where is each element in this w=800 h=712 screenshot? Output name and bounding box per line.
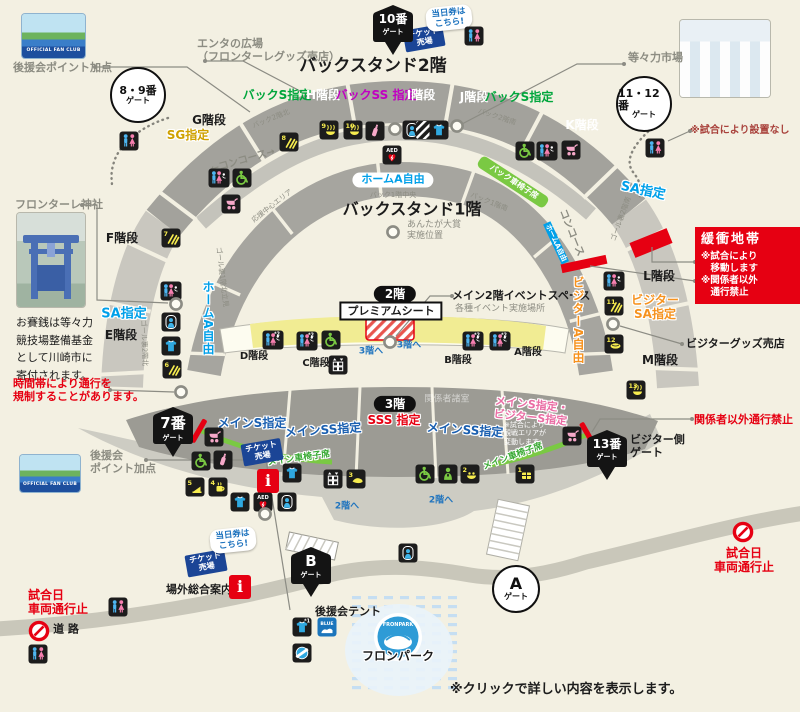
svg-text:i: i <box>265 471 271 490</box>
noentry-icon[interactable] <box>732 521 754 543</box>
info-icon[interactable]: i <box>257 469 279 493</box>
wc-icon[interactable]: *2 <box>490 332 511 351</box>
gate-number: 13番 <box>584 435 630 452</box>
shirt-icon[interactable] <box>162 337 181 356</box>
ring-icon <box>382 334 399 351</box>
svg-text:*2: *2 <box>474 333 480 339</box>
ring-icon <box>257 506 274 523</box>
toilet-icon[interactable] <box>465 27 484 46</box>
svg-text:6: 6 <box>165 361 170 369</box>
noentry-icon[interactable] <box>28 620 50 642</box>
note-no-setup: ※試合により設置なし <box>690 125 790 137</box>
conc-icon[interactable]: 1 <box>516 465 535 484</box>
conc-icon[interactable]: 10 <box>344 121 363 140</box>
shrine-photo[interactable] <box>17 213 85 307</box>
shirt-icon[interactable] <box>430 121 449 140</box>
gate-word: ゲート <box>288 570 334 580</box>
gate-A-marker[interactable]: A ゲート <box>492 565 540 613</box>
rescue-icon[interactable] <box>278 493 297 512</box>
visitor-gate-label: ビジター側 ゲート <box>630 434 685 460</box>
conc-icon[interactable]: 2 <box>461 465 480 484</box>
to-3f-label: 3階へ <box>359 347 383 358</box>
gate-B-marker[interactable]: B ゲート <box>288 545 334 601</box>
shirt-icon[interactable] <box>231 493 250 512</box>
seat-home-a-free: ホームA自由 <box>352 173 433 188</box>
buffer-zone-box: 緩衝地帯 ※試合により 移動します ※関係者以外 通行禁止 <box>695 227 800 304</box>
fanclub-card-photo[interactable]: OFFICIAL FAN CLUB <box>20 455 80 492</box>
seat-back-s: バックS指定 <box>485 90 554 104</box>
gate-word: ゲート <box>504 593 528 601</box>
area-back1f-center: バック1階中央 <box>370 191 416 199</box>
conc-icon[interactable]: 4 <box>209 478 228 497</box>
gate-number: 7番 <box>150 412 196 433</box>
wheelchair-icon[interactable] <box>516 142 535 161</box>
click-note: ※クリックで詳しい内容を表示します。 <box>450 682 682 697</box>
ring-icon <box>168 296 185 313</box>
gate-number: 8・9番 <box>119 85 156 97</box>
stairs-b: B階段 <box>444 355 472 367</box>
stairs-d: D階段 <box>240 351 268 363</box>
area-goal-2f-north: ゴール裏2階北 <box>139 320 149 367</box>
gate-word: ゲート <box>632 111 656 119</box>
ring-icon <box>449 118 466 135</box>
svg-text:BLUE: BLUE <box>320 621 333 627</box>
gate-11・12番-marker[interactable]: 11・12番 ゲート <box>616 76 672 132</box>
wc-icon[interactable] <box>209 169 230 188</box>
stadium-map: 緩衝地帯 ※試合により 移動します ※関係者以外 通行禁止 OFFICIAL F… <box>0 0 800 712</box>
conc-icon[interactable]: 6 <box>163 360 182 379</box>
svg-text:1: 1 <box>518 466 523 474</box>
fanclub-card-text: OFFICIAL FAN CLUB <box>22 48 85 53</box>
fanclub-point-label: 後援会ポイント加点 <box>13 62 112 75</box>
stroller-icon[interactable] <box>563 427 582 446</box>
to-3f-label: 3階へ <box>397 341 421 352</box>
svg-text:*2: *2 <box>308 333 314 339</box>
bottle-icon[interactable] <box>214 451 233 470</box>
conc-icon[interactable]: 13 <box>627 381 646 400</box>
toilet-icon[interactable] <box>109 598 128 617</box>
shrine-donation-note: お賽銭は等々力 競技場整備基金 として川崎市に 寄付されます。 <box>16 314 93 384</box>
stroller-icon[interactable] <box>205 428 224 447</box>
ring-icon <box>385 224 402 241</box>
stroller-icon[interactable] <box>562 141 581 160</box>
stroller-icon[interactable] <box>222 195 241 214</box>
conc-icon[interactable]: 7 <box>162 229 181 248</box>
seat-visitor-sa: ビジター SA指定 <box>631 293 679 321</box>
gate-number: B <box>288 552 334 570</box>
svg-text:AED: AED <box>386 148 397 154</box>
svg-text:7: 7 <box>164 230 169 238</box>
toilet-icon[interactable] <box>29 645 48 664</box>
bluetent-icon[interactable]: BLUE <box>318 618 337 637</box>
to-2f-label: 2階へ <box>335 502 359 513</box>
rescue-icon[interactable] <box>162 313 181 332</box>
svg-text:12: 12 <box>607 336 616 344</box>
fronpark-label: フロンパーク <box>362 649 434 663</box>
to-2f-label: 2階へ <box>429 496 453 507</box>
wc-icon[interactable] <box>537 142 558 161</box>
matchday-road-closed: 試合日 車両通行止 <box>28 588 88 616</box>
locker-icon[interactable] <box>329 356 348 375</box>
stairs-m: M階段 <box>642 353 678 367</box>
svg-text:13: 13 <box>629 382 638 390</box>
seat-back-ss: バックSS 指定 <box>336 88 417 102</box>
svg-text:*1: *1 <box>304 619 310 625</box>
premium-seat-label: プレミアムシート <box>339 302 442 321</box>
wc-icon[interactable] <box>604 272 625 291</box>
fanclub-card-text: OFFICIAL FAN CLUB <box>20 482 80 487</box>
todoroki-market-label: 等々力市場 <box>628 52 683 65</box>
torii-gate-art <box>17 213 85 307</box>
buffer-zone-note: ※試合により <box>701 251 800 263</box>
svg-text:*2: *2 <box>501 333 507 339</box>
floor-3f-badge: 3階 <box>374 396 416 412</box>
staff-rooms-label: 関係者諸室 <box>424 395 469 406</box>
conc-icon[interactable]: 5 <box>186 478 205 497</box>
locker-icon[interactable] <box>324 470 343 489</box>
seat-sss: SSS 指定 <box>367 413 420 427</box>
seat-visitor-a-free-side: ビジターA自由 <box>572 276 584 364</box>
gate-word: ゲート <box>370 27 416 37</box>
gate-number: 10番 <box>370 10 416 27</box>
seat-main-s: メインS指定 <box>218 416 287 430</box>
conc-icon[interactable]: 8 <box>280 133 299 152</box>
anta-taisho-label: あんたが大賞 実施位置 <box>407 220 461 241</box>
stairs-f: F階段 <box>106 231 138 245</box>
traffic-restriction-note: 時間帯により通行を 規制することがあります。 <box>13 378 144 404</box>
fanclub-card-photo[interactable]: OFFICIAL FAN CLUB <box>22 14 85 58</box>
buffer-zone-title: 緩衝地帯 <box>701 232 800 248</box>
aed-icon[interactable]: AED <box>383 146 402 165</box>
drum-icon[interactable] <box>293 644 312 663</box>
toilet-icon[interactable] <box>646 139 665 158</box>
stairs-a: A階段 <box>514 347 542 359</box>
conc-icon[interactable]: 3 <box>347 470 366 489</box>
buffer-zone-note: 通行禁止 <box>701 287 800 299</box>
ring-icon <box>605 316 622 333</box>
seat-sg: SG指定 <box>167 128 210 142</box>
road-label: 道 路 <box>53 624 79 637</box>
stairs-k: K階段 <box>565 118 598 132</box>
main2f-event-space-label: メイン2階イベントスペース <box>452 290 590 303</box>
seat-home-a-free-side: ホームA自由 <box>202 280 214 355</box>
wc-icon[interactable]: *2 <box>297 332 318 351</box>
conc-icon[interactable]: 12 <box>605 335 624 354</box>
today-ticket-bubble: 当日券は こちら! <box>209 526 257 555</box>
conc-icon[interactable]: 11 <box>605 297 624 316</box>
stairs-g: G階段 <box>192 113 226 127</box>
gate-word: ゲート <box>584 452 630 462</box>
matchday-road-closed: 試合日 車両通行止 <box>714 546 774 574</box>
gate-13番-marker[interactable]: 13番 ゲート <box>584 428 630 484</box>
gate-number: 11・12番 <box>618 88 670 111</box>
shirt-icon[interactable]: *1 <box>293 618 312 637</box>
backstand-1f-title: バックスタンド1階 <box>343 201 482 220</box>
svg-text:AED: AED <box>257 495 268 501</box>
wheelchair-icon[interactable] <box>416 465 435 484</box>
ring-icon <box>173 384 190 401</box>
stairs-c: C階段 <box>302 358 329 370</box>
floor-2f-badge: 2階 <box>374 286 416 302</box>
info-icon[interactable]: i <box>229 575 251 599</box>
visitor-goods-shop-label: ビジターグッズ売店 <box>686 338 785 351</box>
stairs-e: E階段 <box>105 328 137 342</box>
rescue-icon[interactable] <box>399 544 418 563</box>
ring-icon <box>387 121 404 138</box>
fanclub-point-label: 後援会 ポイント加点 <box>90 450 156 476</box>
shirt-icon[interactable] <box>283 464 302 483</box>
gate-word: ゲート <box>150 433 196 443</box>
svg-text:9: 9 <box>322 122 327 130</box>
gate-10番-marker[interactable]: 10番 ゲート <box>370 3 416 59</box>
wheelchair-icon[interactable] <box>233 169 252 188</box>
market-photo[interactable] <box>680 20 770 97</box>
svg-text:5: 5 <box>188 479 193 487</box>
wheelchair-icon[interactable] <box>322 331 341 350</box>
wc-icon[interactable]: *2 <box>463 332 484 351</box>
wc-icon[interactable]: *2 <box>263 331 284 350</box>
gate-8・9番-marker[interactable]: 8・9番 ゲート <box>110 67 166 123</box>
bottle-icon[interactable] <box>366 122 385 141</box>
seat-back-s: バックS指定 <box>243 88 312 102</box>
svg-text:10: 10 <box>346 122 356 130</box>
svg-text:i: i <box>237 577 243 596</box>
frontale-shrine-label: フロンターレ神社 <box>15 199 103 212</box>
security-icon[interactable] <box>439 465 458 484</box>
svg-text:4: 4 <box>211 479 216 487</box>
svg-text:*2: *2 <box>274 332 280 338</box>
toilet-icon[interactable] <box>120 132 139 151</box>
buffer-zone-note: 移動します <box>701 263 800 275</box>
conc-icon[interactable]: 9 <box>320 121 339 140</box>
stairs-l: L階段 <box>643 269 675 283</box>
gate-7番-marker[interactable]: 7番 ゲート <box>150 405 196 461</box>
svg-text:8: 8 <box>282 134 287 142</box>
gate-word: ゲート <box>126 97 150 105</box>
svg-text:3: 3 <box>349 471 354 479</box>
gate-number: A <box>510 576 522 593</box>
svg-text:2: 2 <box>463 466 468 474</box>
stairs-i: I階段 <box>407 88 435 102</box>
event-place-note: 各種イベント実施場所 <box>455 304 545 315</box>
staff-only-note: 関係者以外通行禁止 <box>694 414 793 427</box>
buffer-zone-note: ※関係者以外 <box>701 275 800 287</box>
fronpark-logo-text: FRONPARK <box>383 623 414 629</box>
